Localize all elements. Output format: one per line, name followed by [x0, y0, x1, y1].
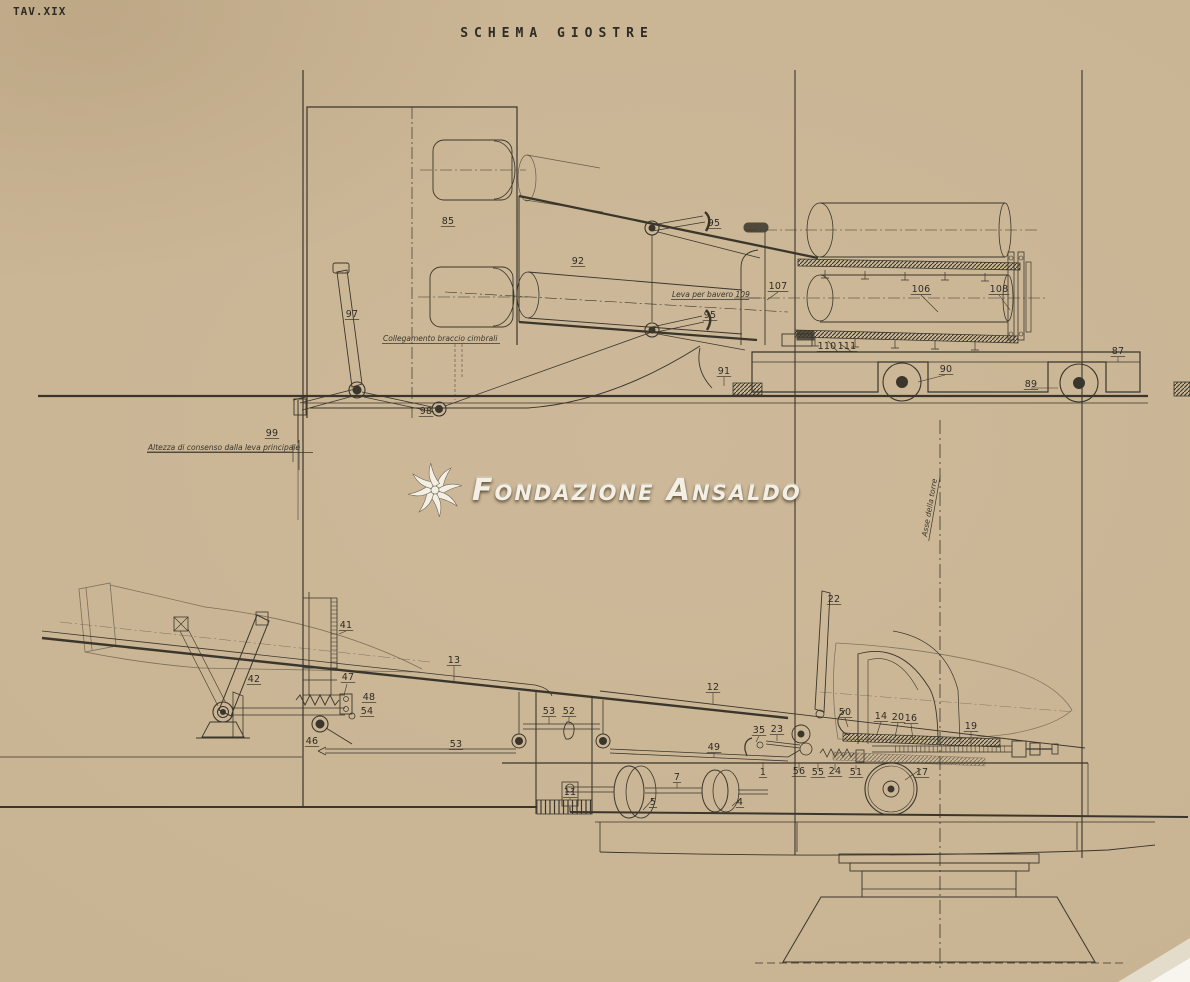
hoist-rack-41 — [303, 592, 346, 695]
svg-text:41: 41 — [340, 620, 353, 631]
svg-text:55: 55 — [812, 767, 825, 778]
svg-text:24: 24 — [829, 766, 842, 777]
control-rods — [318, 692, 800, 761]
svg-text:14: 14 — [875, 711, 888, 722]
svg-text:Collegamento braccio cimbrali: Collegamento braccio cimbrali — [383, 334, 498, 343]
part-label: 19 — [964, 721, 978, 732]
svg-text:97: 97 — [346, 309, 359, 320]
latch-linkage-95 — [445, 212, 760, 406]
svg-text:13: 13 — [448, 655, 461, 666]
part-label: 12 — [706, 682, 720, 693]
part-label: 49 — [707, 742, 721, 753]
part-label: 98 — [419, 406, 433, 417]
annotation-label: Asse della torre — [919, 474, 940, 541]
svg-text:16: 16 — [905, 713, 918, 724]
part-labels-upper: 8592959597989910710610811011187909189 — [265, 216, 1125, 439]
part-label: 95 — [707, 218, 721, 229]
svg-text:90: 90 — [940, 364, 953, 375]
annotation-label: Collegamento braccio cimbrali — [382, 334, 500, 344]
part-label: 11 — [563, 787, 577, 798]
part-label: 5 — [649, 797, 657, 808]
part-label: 35 — [752, 725, 766, 736]
annotations-lower: Asse della torre — [919, 474, 940, 541]
part-label: 106 — [911, 284, 932, 295]
svg-text:7: 7 — [674, 772, 680, 783]
annotations-upper: Collegamento braccio cimbraliLeva per ba… — [147, 290, 750, 453]
part-label: 51 — [849, 767, 863, 778]
svg-text:42: 42 — [248, 674, 261, 685]
svg-text:11: 11 — [564, 787, 577, 798]
svg-text:54: 54 — [361, 706, 374, 717]
svg-text:108: 108 — [990, 284, 1009, 295]
svg-text:87: 87 — [1112, 346, 1125, 357]
part-label: 53 — [449, 739, 463, 750]
svg-text:107: 107 — [769, 281, 788, 292]
part-label: 22 — [827, 594, 841, 605]
hand-lever-97 — [147, 263, 462, 520]
scan-corner-artifact — [1118, 938, 1190, 982]
upper-deck — [38, 396, 1148, 403]
part-label: 52 — [562, 706, 576, 717]
part-label: 24 — [828, 766, 842, 777]
part-label: 97 — [345, 309, 359, 320]
part-label: 20 — [891, 712, 905, 723]
part-label: 7 — [673, 772, 681, 783]
part-label: 4 — [736, 797, 744, 808]
svg-text:23: 23 — [771, 724, 784, 735]
part-label: 53 — [542, 706, 556, 717]
part-label: 85 — [441, 216, 455, 227]
annotation-label: Altezza di consenso dalla leva principal… — [147, 443, 313, 453]
page-title: SCHEMA GIOSTRE — [0, 26, 1114, 41]
floor-deck-pedestal — [0, 420, 1188, 968]
svg-text:56: 56 — [793, 766, 806, 777]
part-label: 95 — [703, 310, 717, 321]
svg-text:46: 46 — [306, 736, 319, 747]
svg-text:47: 47 — [342, 672, 355, 683]
svg-text:53: 53 — [450, 739, 463, 750]
svg-text:106: 106 — [912, 284, 931, 295]
part-label: 1 — [759, 767, 767, 778]
plate-number: TAV.XIX — [13, 5, 66, 18]
svg-text:92: 92 — [572, 256, 585, 267]
svg-text:50: 50 — [839, 707, 852, 718]
svg-text:1: 1 — [760, 767, 766, 778]
part-label: 13 — [447, 655, 461, 666]
part-label: 42 — [247, 674, 261, 685]
rammer-breech-group — [745, 591, 1075, 770]
part-label: 17 — [915, 767, 929, 778]
svg-text:12: 12 — [707, 682, 720, 693]
svg-text:91: 91 — [718, 366, 731, 377]
svg-text:20: 20 — [892, 712, 905, 723]
annotation-label: Leva per bavero 109 — [671, 290, 750, 300]
svg-text:5: 5 — [650, 797, 656, 808]
part-label: 110 — [817, 341, 838, 352]
part-label: 90 — [939, 364, 953, 375]
part-label: 99 — [265, 428, 279, 439]
part-label: 56 — [792, 766, 806, 777]
svg-text:4: 4 — [737, 797, 743, 808]
scanned-drawing-page: { "page": { "plate_number": "TAV.XIX", "… — [0, 0, 1190, 982]
hoist-trunk-85 — [307, 107, 528, 418]
svg-text:111: 111 — [838, 341, 857, 352]
svg-text:85: 85 — [442, 216, 455, 227]
svg-text:49: 49 — [708, 742, 721, 753]
spring-bracket-group — [296, 684, 355, 744]
part-label: 41 — [339, 620, 353, 631]
part-label: 107 — [768, 281, 789, 292]
lower-view — [0, 420, 1188, 968]
part-label: 48 — [362, 692, 376, 703]
svg-text:22: 22 — [828, 594, 841, 605]
part-label: 87 — [1111, 346, 1125, 357]
svg-text:17: 17 — [916, 767, 929, 778]
transfer-tray-92 — [310, 155, 818, 408]
svg-text:51: 51 — [850, 767, 863, 778]
part-label: 91 — [717, 366, 731, 377]
part-label: 14 — [874, 711, 888, 722]
svg-text:Leva per bavero 109: Leva per bavero 109 — [672, 290, 750, 299]
svg-text:48: 48 — [363, 692, 376, 703]
schematic-drawing: 8592959597989910710610811011187909189 41… — [0, 0, 1190, 982]
svg-text:99: 99 — [266, 428, 279, 439]
part-label: 16 — [904, 713, 918, 724]
svg-text:19: 19 — [965, 721, 978, 732]
svg-text:89: 89 — [1025, 379, 1038, 390]
axle-rollers — [562, 763, 921, 818]
part-label: 50 — [838, 707, 852, 718]
svg-text:35: 35 — [753, 725, 766, 736]
part-label: 111 — [837, 341, 858, 352]
svg-text:53: 53 — [543, 706, 556, 717]
svg-text:98: 98 — [420, 406, 433, 417]
part-label: 47 — [341, 672, 355, 683]
part-label: 108 — [989, 284, 1010, 295]
part-label: 92 — [571, 256, 585, 267]
svg-text:Altezza di consenso dalla leva: Altezza di consenso dalla leva principal… — [147, 443, 300, 452]
svg-text:95: 95 — [704, 310, 717, 321]
svg-text:110: 110 — [818, 341, 837, 352]
part-label: 46 — [305, 736, 319, 747]
svg-text:95: 95 — [708, 218, 721, 229]
svg-text:Asse della torre: Asse della torre — [920, 477, 939, 538]
part-label: 89 — [1024, 379, 1038, 390]
part-label: 54 — [360, 706, 374, 717]
svg-text:52: 52 — [563, 706, 576, 717]
part-label: 55 — [811, 767, 825, 778]
part-label: 23 — [770, 724, 784, 735]
